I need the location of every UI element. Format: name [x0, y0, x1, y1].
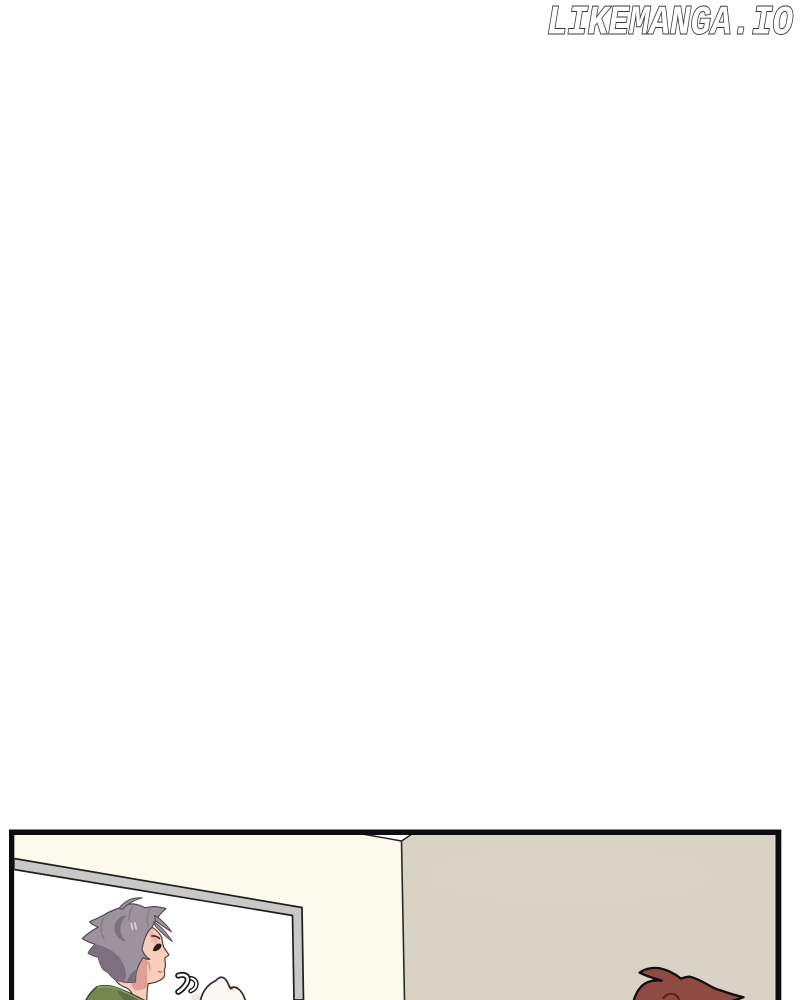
- svg-text:LIKEMANGA.IO: LIKEMANGA.IO: [547, 1, 793, 47]
